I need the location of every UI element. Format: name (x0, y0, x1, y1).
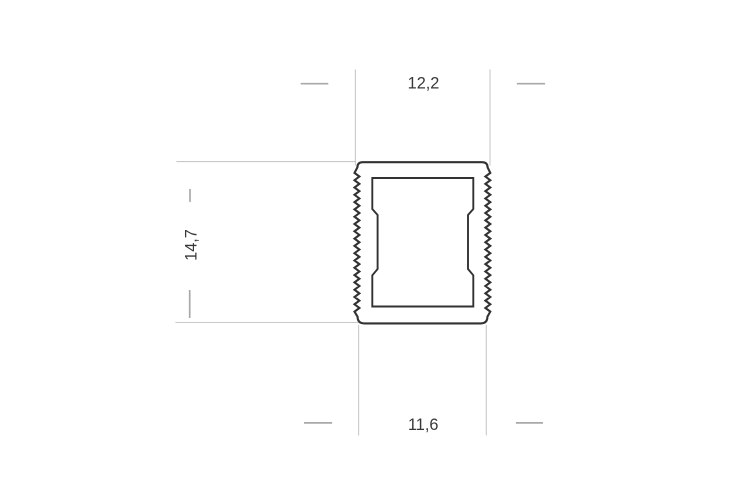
svg-text:12,2: 12,2 (408, 74, 440, 92)
svg-text:11,6: 11,6 (408, 416, 438, 434)
svg-text:14,7: 14,7 (183, 229, 201, 261)
